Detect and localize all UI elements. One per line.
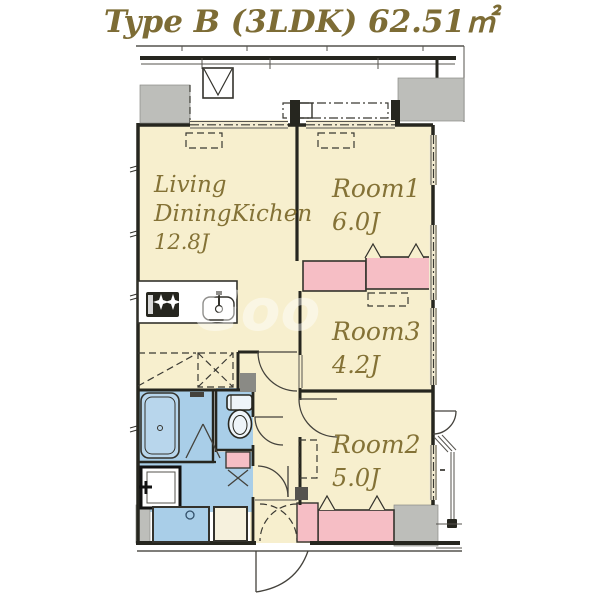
- room3-label: Room3: [331, 317, 421, 346]
- bathtub-icon: [141, 393, 179, 458]
- room2-size: 5.0J: [332, 464, 381, 492]
- room2-side-window: [429, 445, 437, 500]
- room3-side-window: [429, 308, 437, 385]
- plan-title: Type B (3LDK) 62.51㎡: [104, 4, 502, 40]
- room2-balcony-door: [433, 411, 456, 434]
- stove-burners-icon: [146, 292, 181, 317]
- room2-label: Room2: [331, 430, 421, 459]
- wall-tick-marks: [130, 166, 137, 432]
- meter-box-icon: [203, 68, 233, 98]
- room3-size: 4.2J: [331, 351, 381, 379]
- floorplan-drawing: Type B (3LDK) 62.51㎡: [0, 0, 600, 600]
- ldk-balcony-window: [190, 120, 288, 129]
- watermark-text: Goo: [193, 276, 320, 344]
- entrance-door: [256, 551, 308, 592]
- storage-unit: [214, 507, 247, 541]
- vanity-unit-icon: [153, 507, 209, 542]
- room1-size: 6.0J: [332, 208, 381, 236]
- balcony-railing: [140, 58, 456, 80]
- toilet-icon: [227, 395, 252, 438]
- wall-chunk: [240, 373, 256, 392]
- ldk-label-line2: DiningKichen: [153, 201, 312, 227]
- toilet-room: [227, 395, 252, 438]
- floorplan-page: Type B (3LDK) 62.51㎡: [0, 0, 600, 600]
- room1-balcony-window: [306, 120, 395, 129]
- room1-label: Room1: [331, 174, 421, 203]
- entrance-shoe-cabinet: [297, 503, 318, 542]
- washing-machine-pan-icon: [139, 467, 180, 508]
- ldk-label-line1: Living: [153, 172, 227, 198]
- shower-mixer-icon: [190, 392, 204, 397]
- wall-chunk: [295, 487, 308, 500]
- ldk-label-size: 12.8J: [154, 230, 211, 254]
